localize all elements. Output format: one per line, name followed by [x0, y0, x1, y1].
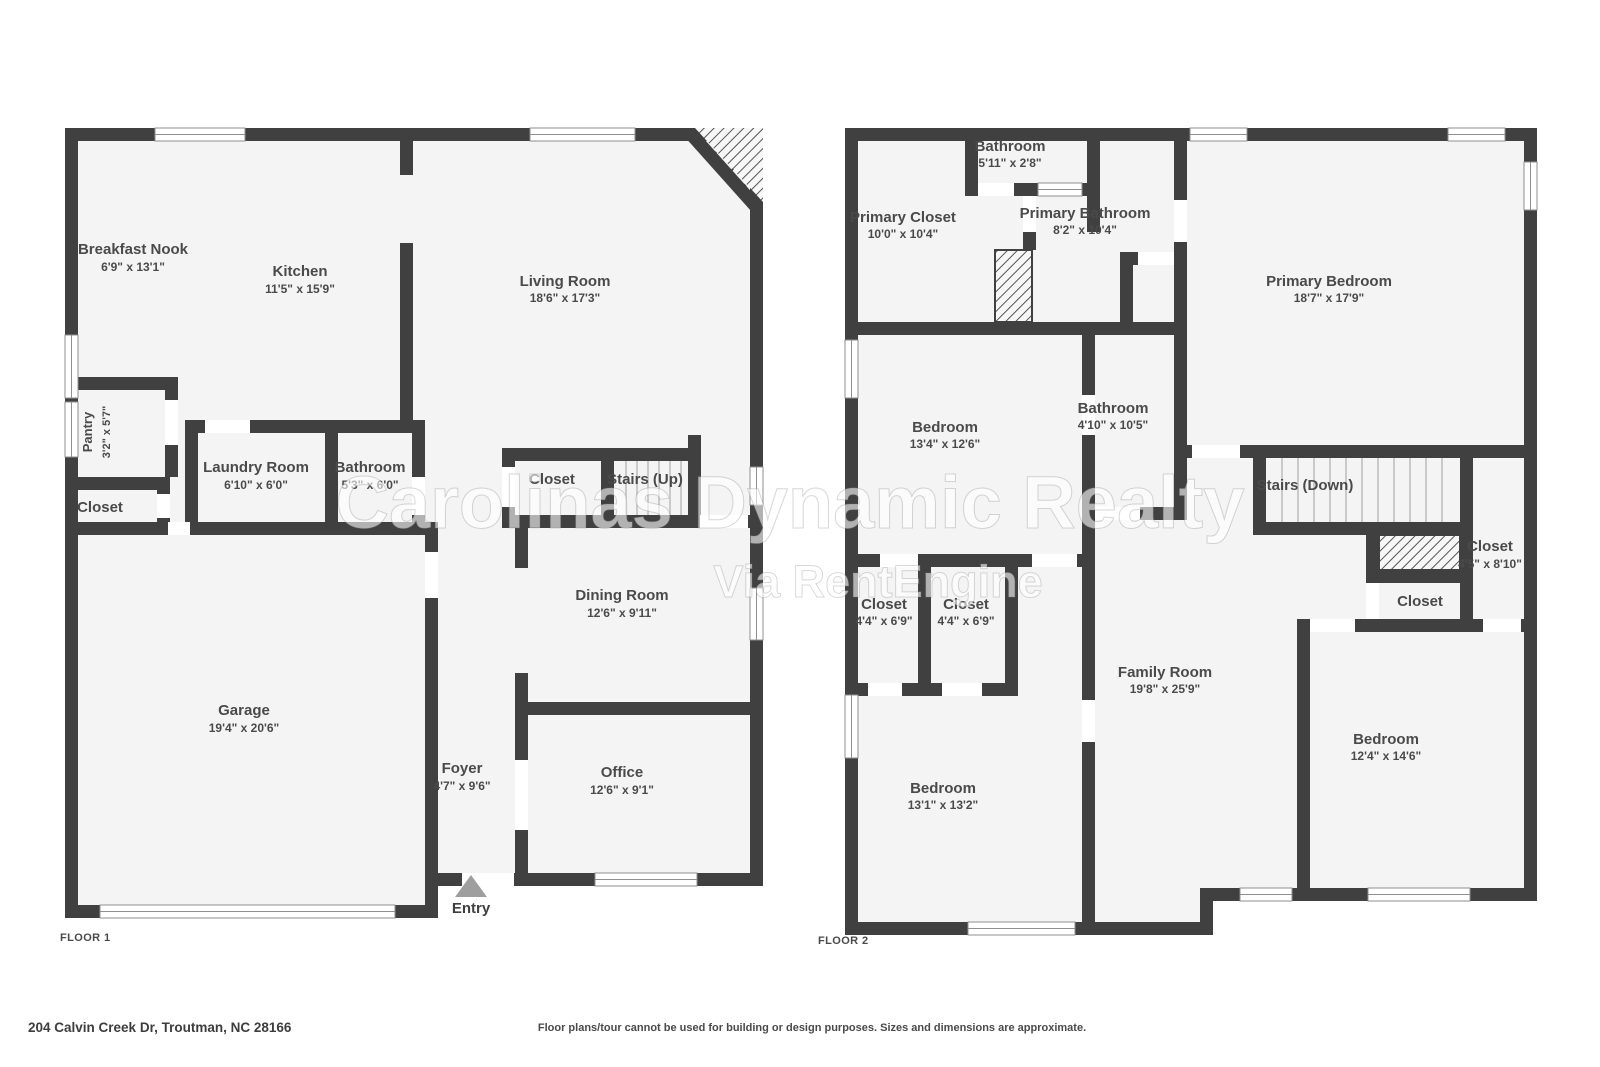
- room-label-closet-small: Closet: [1397, 593, 1443, 610]
- room-label-pantry: Pantry: [80, 411, 95, 452]
- room-label-bedroom-a: Bedroom: [912, 419, 978, 436]
- room-dims-laundry: 6'10" x 6'0": [224, 478, 288, 492]
- room-dims-bedroom-b: 13'1" x 13'2": [908, 798, 978, 812]
- chase-hatch-upper: [995, 250, 1032, 322]
- room-label-closet-right: Closet: [1467, 538, 1513, 555]
- room-label-laundry: Laundry Room: [203, 459, 309, 476]
- room-dims-kitchen: 11'5" x 15'9": [265, 282, 335, 296]
- room-label-breakfast-nook: Breakfast Nook: [78, 241, 189, 258]
- room-dims-living-room: 18'6" x 17'3": [530, 291, 600, 305]
- room-dims-bathroom-top: 5'11" x 2'8": [978, 156, 1041, 170]
- room-label-primary-bathroom: Primary Bathroom: [1020, 205, 1151, 222]
- room-dims-bedroom-c: 12'4" x 14'6": [1351, 749, 1421, 763]
- watermark-line2: Via RentEngine: [713, 556, 1042, 607]
- room-label-bathroom-mid: Bathroom: [1078, 400, 1149, 417]
- chase-hatch-lower: [1379, 535, 1460, 570]
- room-label-family-room: Family Room: [1118, 664, 1212, 681]
- room-dims-closet-b: 4'4" x 6'9": [937, 614, 994, 628]
- room-dims-family-room: 19'8" x 25'9": [1130, 682, 1200, 696]
- watermark-line1: Carolinas Dynamic Realty: [336, 461, 1245, 544]
- property-address: 204 Calvin Creek Dr, Troutman, NC 28166: [28, 1020, 292, 1035]
- room-dims-closet-a: 4'4" x 6'9": [855, 614, 912, 628]
- floor2-title: FLOOR 2: [818, 935, 868, 947]
- room-label-kitchen: Kitchen: [272, 263, 327, 280]
- room-label-primary-bedroom: Primary Bedroom: [1266, 273, 1392, 290]
- room-label-closet-left: Closet: [77, 499, 123, 516]
- room-label-office: Office: [601, 764, 644, 781]
- room-label-bedroom-c: Bedroom: [1353, 731, 1419, 748]
- room-dims-dining: 12'6" x 9'11": [587, 606, 657, 620]
- room-label-foyer: Foyer: [442, 760, 483, 777]
- room-label-primary-closet: Primary Closet: [850, 209, 956, 226]
- room-dims-closet-right: 4'5" x 8'10": [1458, 557, 1522, 571]
- room-dims-bathroom-mid: 4'10" x 10'5": [1078, 418, 1148, 432]
- room-label-bathroom-top: Bathroom: [975, 138, 1046, 155]
- room-label-dining: Dining Room: [575, 587, 668, 604]
- footer: 204 Calvin Creek Dr, Troutman, NC 28166 …: [28, 1020, 1086, 1035]
- room-label-living-room: Living Room: [520, 273, 611, 290]
- room-label-garage: Garage: [218, 702, 270, 719]
- room-dims-office: 12'6" x 9'1": [590, 783, 654, 797]
- floor-plan-canvas: Breakfast Nook 6'9" x 13'1" Kitchen 11'5…: [0, 0, 1600, 1067]
- room-dims-primary-bedroom: 18'7" x 17'9": [1294, 291, 1364, 305]
- disclaimer-text: Floor plans/tour cannot be used for buil…: [538, 1022, 1086, 1034]
- floor-plan-page: Breakfast Nook 6'9" x 13'1" Kitchen 11'5…: [0, 0, 1600, 1067]
- room-dims-pantry: 3'2" x 5'7": [101, 406, 113, 458]
- room-label-bedroom-b: Bedroom: [910, 780, 976, 797]
- room-dims-primary-closet: 10'0" x 10'4": [868, 227, 938, 241]
- room-dims-foyer: 4'7" x 9'6": [433, 779, 490, 793]
- room-dims-primary-bathroom: 8'2" x 10'4": [1053, 223, 1117, 237]
- room-label-stairs-down: Stairs (Down): [1257, 477, 1354, 494]
- room-dims-breakfast-nook: 6'9" x 13'1": [101, 260, 165, 274]
- room-dims-garage: 19'4" x 20'6": [209, 721, 279, 735]
- floor1-title: FLOOR 1: [60, 932, 110, 944]
- room-dims-bedroom-a: 13'4" x 12'6": [910, 437, 980, 451]
- entry-label: Entry: [452, 900, 491, 917]
